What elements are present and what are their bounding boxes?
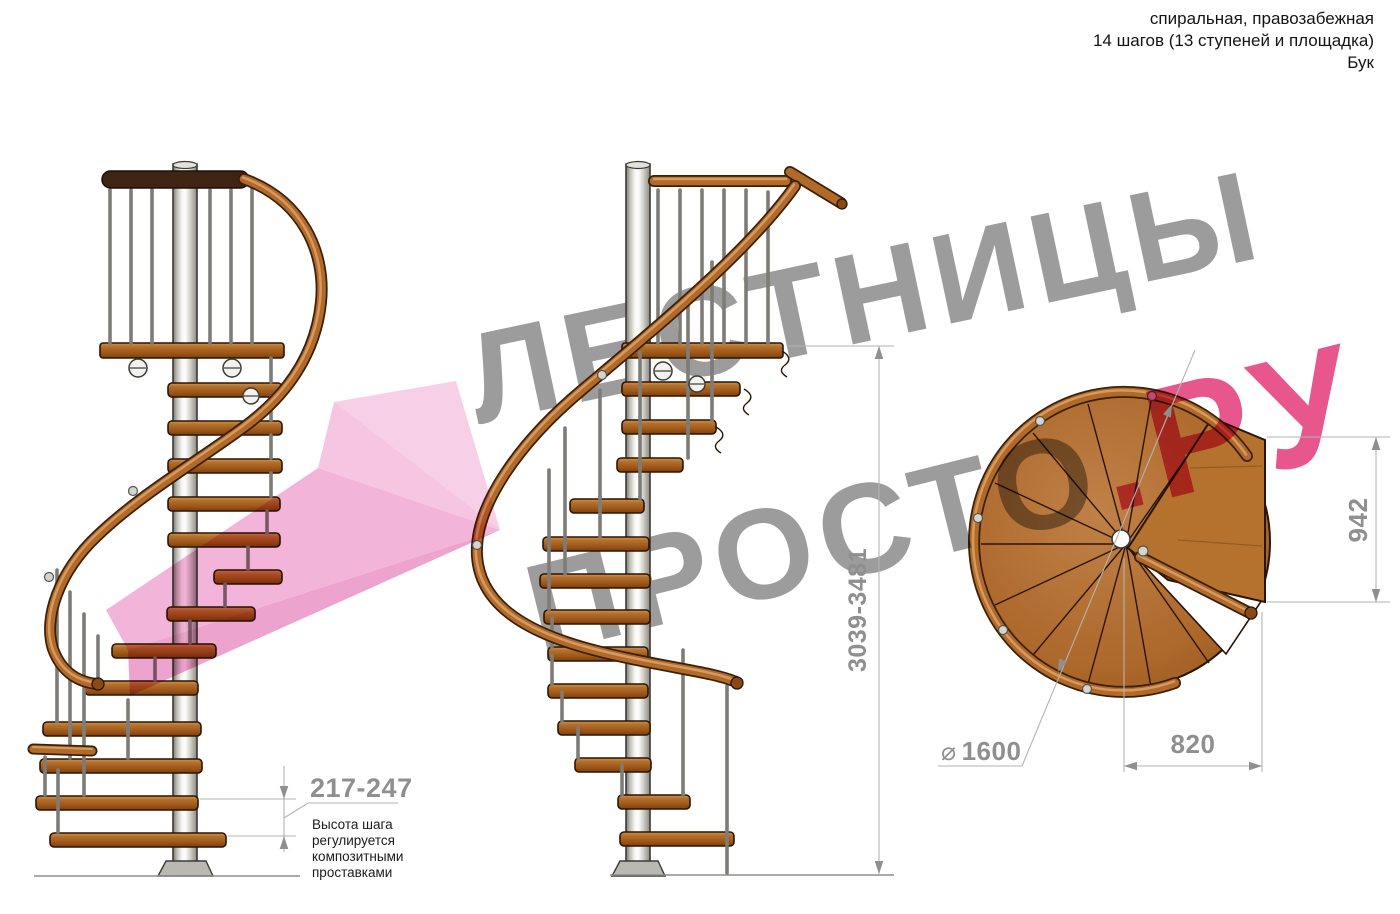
pole-base-flange <box>158 861 213 876</box>
watermark-line-2-pink: .РУ <box>1077 310 1381 546</box>
pole-base-flange <box>612 861 665 876</box>
staircase-drawing: ЛЕСТНИЦЫ ПРОСТО.РУ <box>0 0 1400 914</box>
landing-board <box>622 343 783 358</box>
total-height-value: 3039-3481 <box>844 548 872 672</box>
landing-handrail <box>102 171 249 188</box>
center-pole <box>173 164 197 863</box>
step-height-value: 217-247 <box>310 773 413 803</box>
title-line-steps: 14 шагов (13 ступеней и площадка) <box>1093 30 1374 52</box>
title-line-material: Бук <box>1093 52 1374 74</box>
pole-cap <box>173 162 197 169</box>
step-height-note: Высота шага <box>312 817 393 832</box>
title-line-type: спиральная, правозабежная <box>1093 8 1374 30</box>
landing-depth-value: 942 <box>1343 498 1373 543</box>
center-pole-fitting <box>1138 546 1148 556</box>
step-height-note: композитными <box>312 849 403 864</box>
landing-handrail <box>654 172 847 209</box>
pole-cap <box>626 162 650 169</box>
diameter-value: ⌀1600 <box>941 736 1021 766</box>
lower-handrail-segment <box>33 747 92 751</box>
diameter-symbol: ⌀ <box>941 738 957 766</box>
landing-board <box>100 343 284 358</box>
step-height-note: регулируется <box>312 833 395 848</box>
dim-step-height: 217-247 Высота шага регулируется компози… <box>200 766 413 880</box>
drawing-canvas: ЛЕСТНИЦЫ ПРОСТО.РУ <box>0 0 1400 914</box>
direction-arrow-watermark <box>106 381 500 696</box>
title-block: спиральная, правозабежная 14 шагов (13 с… <box>1093 8 1374 74</box>
landing-width-value: 820 <box>1171 729 1216 759</box>
step-height-note: проставками <box>312 865 392 880</box>
